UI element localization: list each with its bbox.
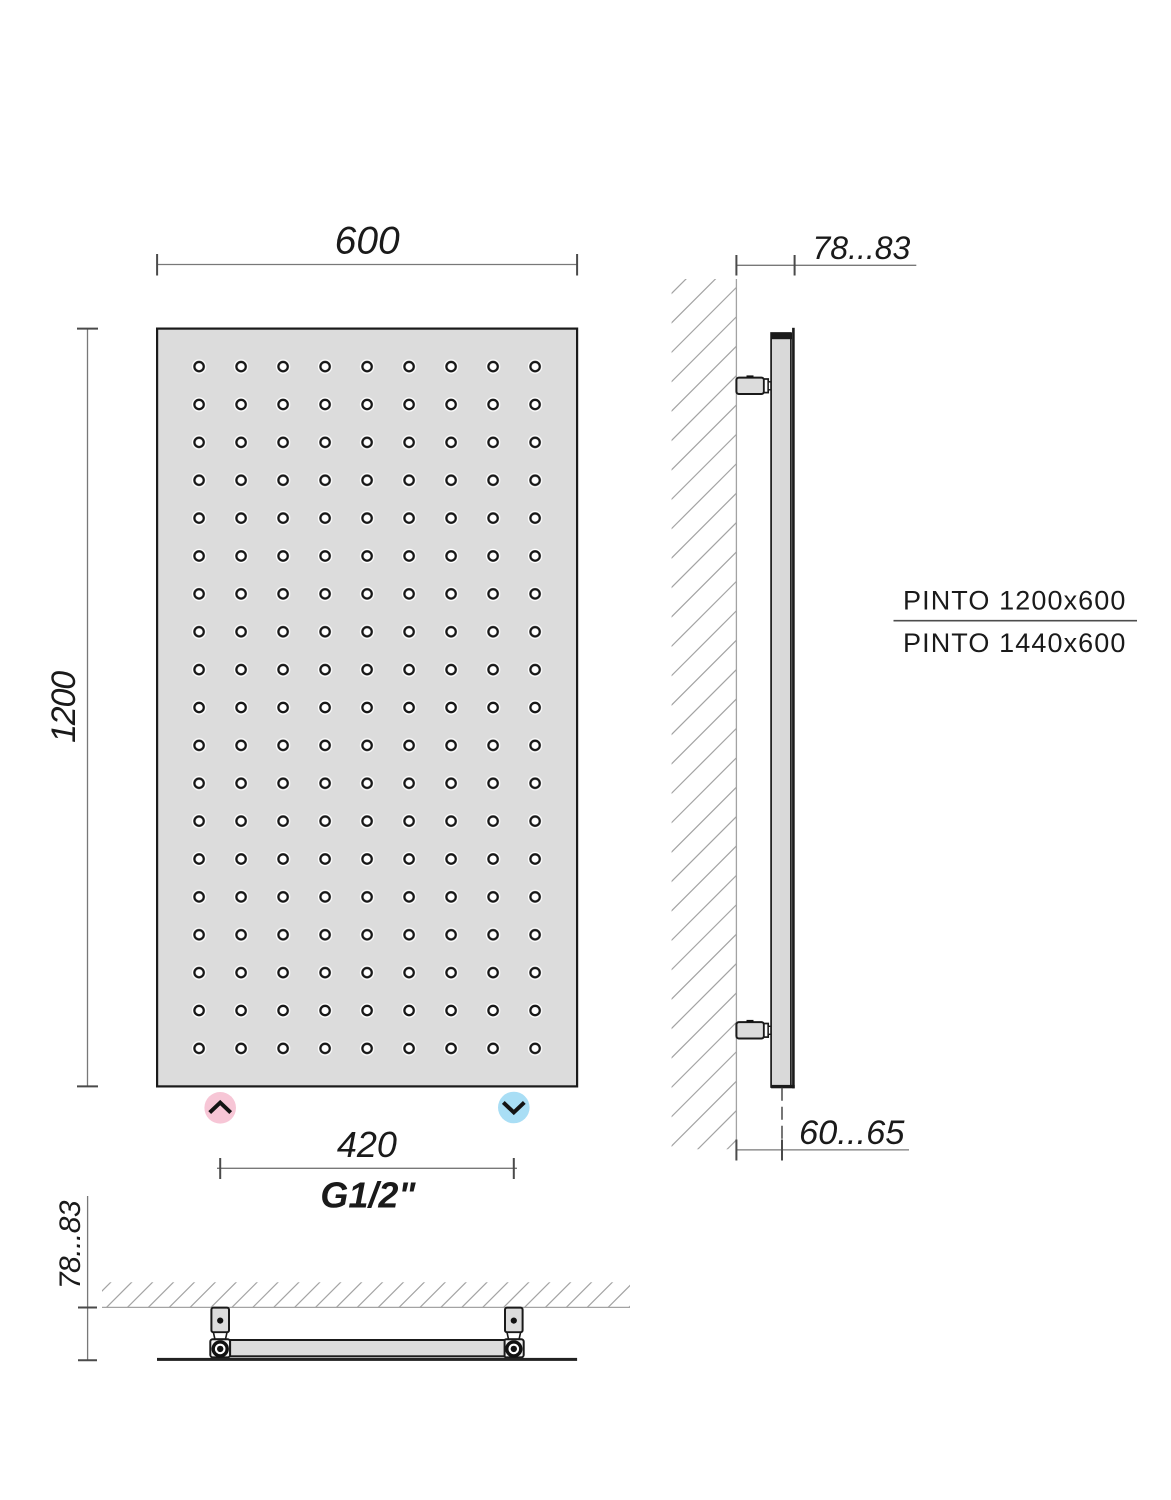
svg-text:G1/2": G1/2" (320, 1175, 416, 1216)
svg-text:PINTO 1440x600: PINTO 1440x600 (903, 628, 1127, 658)
svg-text:78...83: 78...83 (812, 230, 910, 266)
svg-text:420: 420 (337, 1124, 397, 1165)
svg-text:PINTO 1200x600: PINTO 1200x600 (903, 586, 1127, 616)
svg-text:60...65: 60...65 (799, 1114, 905, 1152)
svg-text:600: 600 (335, 220, 400, 263)
svg-text:1200: 1200 (45, 671, 83, 743)
svg-text:78...83: 78...83 (54, 1200, 87, 1289)
